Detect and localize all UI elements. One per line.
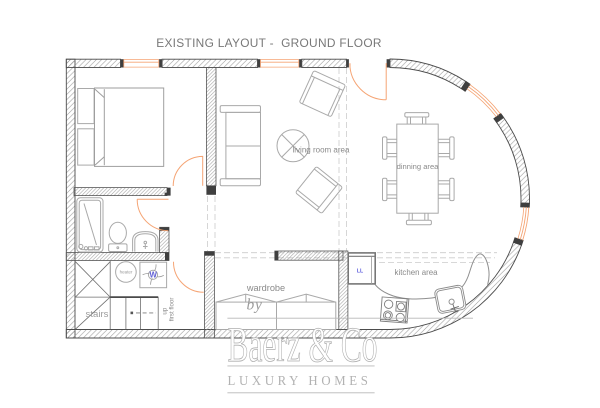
svg-text:by: by: [247, 297, 263, 314]
svg-text:LL: LL: [357, 269, 364, 275]
svg-text:kitchen area: kitchen area: [395, 268, 439, 277]
svg-text:W: W: [150, 271, 158, 280]
svg-text:wardrobe: wardrobe: [246, 283, 285, 293]
svg-text:LUXURY HOMES: LUXURY HOMES: [228, 374, 372, 389]
svg-text:EXISTING LAYOUT - GROUND FLOO: EXISTING LAYOUT - GROUND FLOOR: [156, 36, 382, 50]
svg-text:dinning area: dinning area: [397, 162, 440, 171]
svg-text:first floor: first floor: [169, 298, 176, 322]
svg-text:stairs: stairs: [86, 309, 109, 320]
svg-text:living room area: living room area: [293, 146, 350, 155]
svg-text:heater: heater: [120, 269, 133, 274]
svg-text:up: up: [162, 307, 169, 314]
svg-text:Baerz & Co: Baerz & Co: [228, 316, 378, 372]
